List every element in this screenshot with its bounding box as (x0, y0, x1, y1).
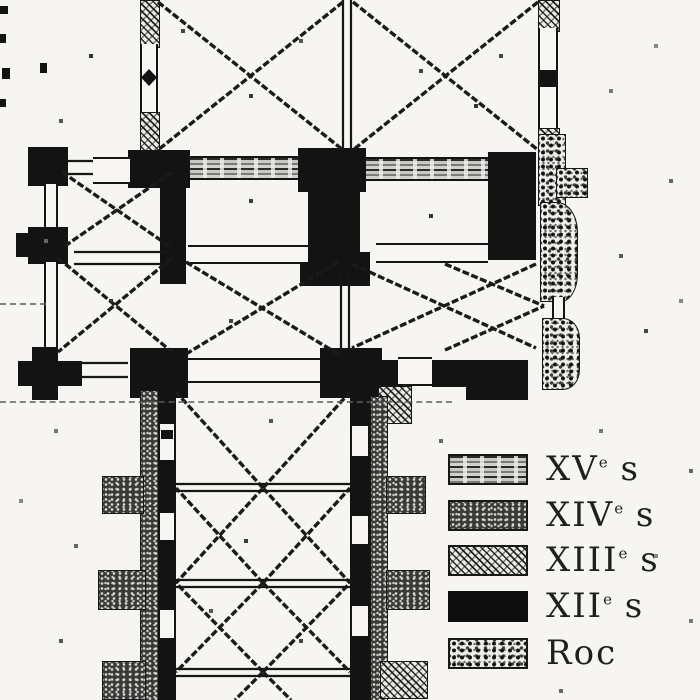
legend-row-xii: XIIe s (448, 589, 644, 623)
legend-label-xiii: XIIIe s (546, 543, 660, 577)
legend-swatch-xv (448, 454, 528, 485)
scan-noise-speckles (0, 0, 2, 2)
legend-row-roc: Roc (448, 636, 617, 670)
legend-label-xiv: XIVe s (546, 498, 655, 532)
legend-label-roc: Roc (546, 636, 617, 670)
legend: XVe s XIVe s XIIIe s XIIe s Roc (0, 0, 700, 700)
legend-label-xii: XIIe s (546, 589, 644, 623)
legend-swatch-xii (448, 591, 528, 622)
legend-swatch-roc (448, 638, 528, 669)
legend-swatch-xiv (448, 500, 528, 531)
scanned-plan-page: XVe s XIVe s XIIIe s XIIe s Roc (0, 0, 700, 700)
legend-label-xv: XVe s (546, 452, 640, 486)
legend-swatch-xiii (448, 545, 528, 576)
legend-row-xv: XVe s (448, 452, 640, 486)
legend-row-xiii: XIIIe s (448, 543, 660, 577)
legend-row-xiv: XIVe s (448, 498, 655, 532)
